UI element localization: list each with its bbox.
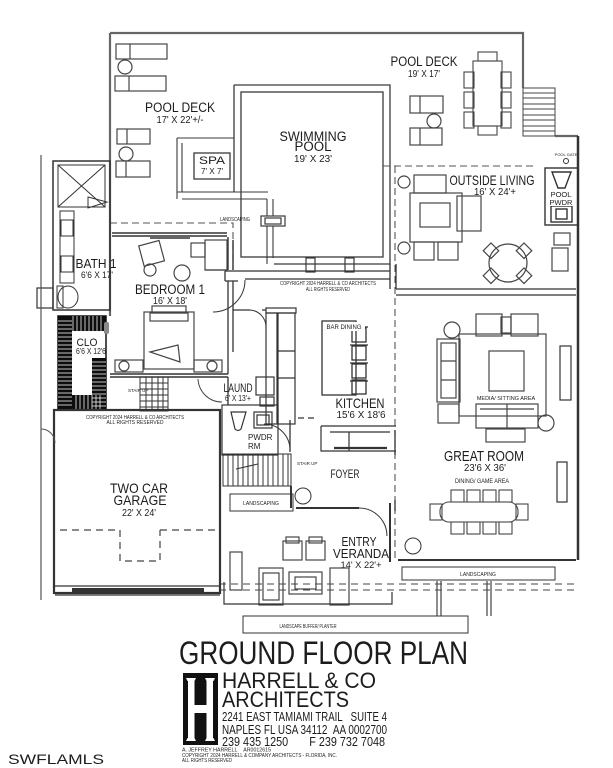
- svg-text:17' X 22'+/-: 17' X 22'+/-: [157, 115, 204, 126]
- svg-text:POOL DECK: POOL DECK: [391, 54, 458, 69]
- svg-text:OUTSIDE LIVING: OUTSIDE LIVING: [450, 172, 535, 188]
- svg-text:16' X 18': 16' X 18': [153, 296, 187, 307]
- svg-text:PWDR: PWDR: [550, 198, 573, 207]
- svg-text:15'6 X 18'6: 15'6 X 18'6: [337, 410, 386, 421]
- svg-text:BEDROOM 1: BEDROOM 1: [135, 282, 205, 297]
- svg-text:MEDIA/ SITTING AREA: MEDIA/ SITTING AREA: [477, 396, 536, 402]
- svg-text:ALL RIGHTS RESERVED: ALL RIGHTS RESERVED: [107, 420, 164, 426]
- svg-text:LANDSCAPING: LANDSCAPING: [243, 501, 279, 507]
- svg-text:POOL DECK: POOL DECK: [145, 100, 215, 115]
- svg-text:GARAGE: GARAGE: [114, 492, 167, 508]
- svg-text:STAIR UP: STAIR UP: [297, 461, 317, 466]
- svg-text:BATH 1: BATH 1: [76, 257, 117, 271]
- svg-text:ALL RIGHTS RESERVED: ALL RIGHTS RESERVED: [306, 287, 350, 293]
- svg-text:VERANDA: VERANDA: [333, 547, 390, 561]
- svg-text:RM: RM: [248, 442, 261, 451]
- svg-text:BAR DINING: BAR DINING: [326, 325, 361, 331]
- svg-text:LANDSCAPE BUFFER/ PLANTER: LANDSCAPE BUFFER/ PLANTER: [280, 624, 337, 630]
- svg-text:14' X 22'+: 14' X 22'+: [341, 560, 382, 571]
- svg-text:ALL RIGHTS RESERVED: ALL RIGHTS RESERVED: [182, 758, 232, 764]
- svg-text:KITCHEN: KITCHEN: [336, 395, 385, 411]
- svg-text:LANDSCAPING: LANDSCAPING: [460, 572, 496, 578]
- svg-text:SWFLAMLS: SWFLAMLS: [8, 752, 104, 767]
- svg-text:6' X 13'+: 6' X 13'+: [225, 393, 251, 403]
- svg-text:19' X 23': 19' X 23': [294, 154, 332, 165]
- svg-text:STAIR UP: STAIR UP: [128, 388, 148, 393]
- svg-text:23'6 X 36': 23'6 X 36': [464, 462, 506, 474]
- svg-text:GROUND FLOOR PLAN: GROUND FLOOR PLAN: [179, 635, 468, 671]
- svg-text:6'6 X 12'6: 6'6 X 12'6: [76, 347, 106, 356]
- svg-text:22' X 24': 22' X 24': [122, 508, 156, 519]
- svg-text:DINING/ GAME AREA: DINING/ GAME AREA: [455, 479, 509, 485]
- svg-text:PWDR: PWDR: [248, 433, 273, 442]
- svg-text:FOYER: FOYER: [331, 469, 360, 481]
- svg-text:POOL: POOL: [295, 139, 332, 154]
- svg-text:7' X 7': 7' X 7': [201, 166, 223, 176]
- svg-text:POOL GATE: POOL GATE: [555, 152, 578, 157]
- svg-text:19' X 17': 19' X 17': [408, 69, 440, 80]
- svg-text:LANDSCAPING: LANDSCAPING: [220, 217, 250, 223]
- svg-text:6'6 X 17': 6'6 X 17': [81, 270, 113, 281]
